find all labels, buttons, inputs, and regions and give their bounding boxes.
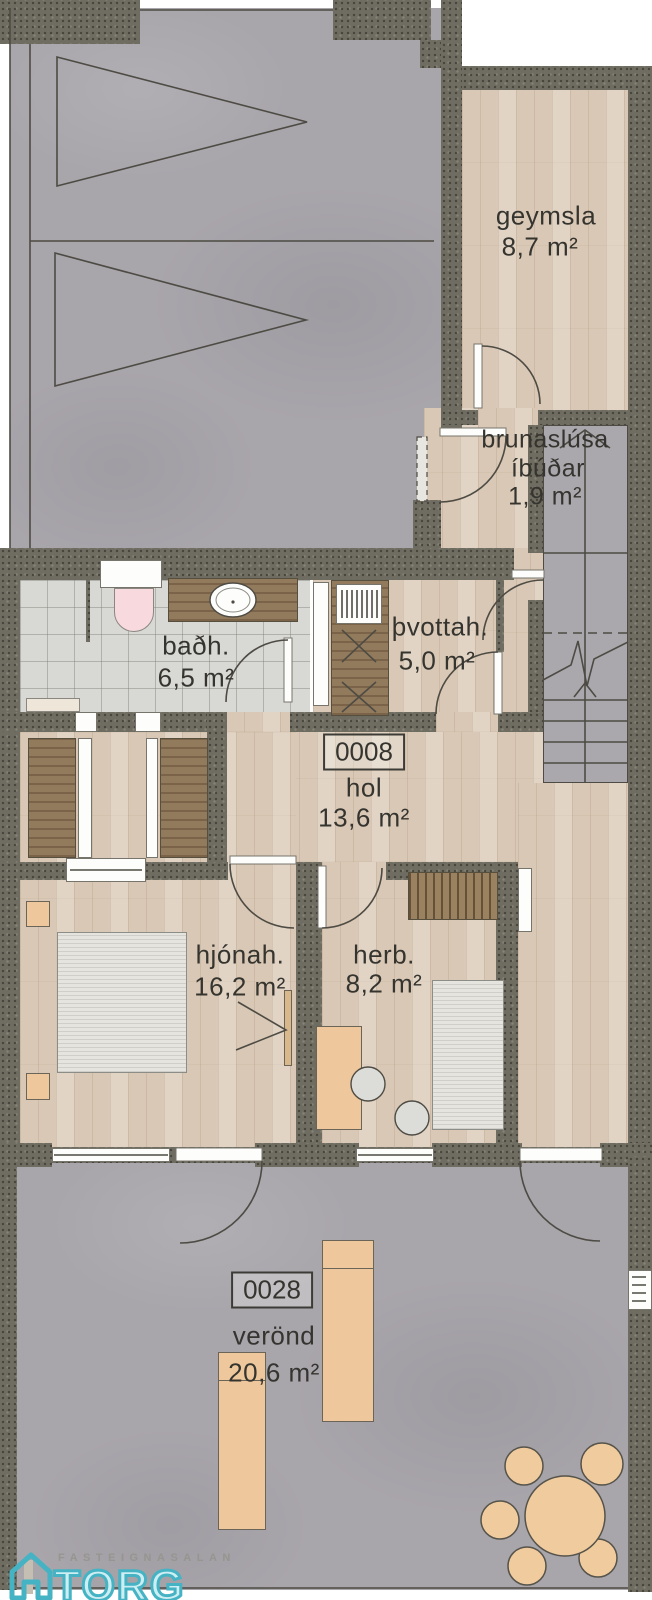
washing-machine-icon	[342, 590, 377, 618]
verond-area: 20,6 m²	[228, 1358, 320, 1389]
door-arc	[520, 1161, 600, 1241]
thvottahus-label: þvottah.	[392, 612, 489, 643]
door-leaf	[318, 866, 326, 928]
sliding-fire-door	[417, 437, 427, 501]
sink-icon	[210, 583, 256, 617]
door-leaf	[520, 1148, 602, 1161]
hjonaherbergi-label: hjónah.	[196, 940, 285, 971]
brunaslusa-label2: íbúðar	[511, 455, 585, 484]
round-table	[525, 1476, 605, 1556]
torg-house-icon	[12, 1555, 50, 1598]
hjonaherbergi-area: 16,2 m²	[194, 972, 286, 1003]
terrace-dining-set	[481, 1443, 623, 1585]
door-arc	[322, 868, 382, 928]
door-leaf	[284, 638, 292, 702]
door-arc	[482, 346, 540, 404]
door-leaf	[512, 570, 544, 578]
herbergi-area: 8,2 m²	[346, 969, 423, 1000]
door-leaf	[494, 652, 502, 714]
door-leaf	[474, 344, 482, 408]
cabinet-x-icon	[342, 630, 376, 712]
mirror-pointer	[236, 1002, 286, 1050]
logo-title: TORG	[54, 1562, 185, 1600]
verond-room-number: 0028	[231, 1272, 313, 1309]
geymsla-label: geymsla	[496, 201, 596, 232]
door-leaf	[230, 856, 296, 864]
door-arc	[226, 640, 288, 702]
hol-room-number: 0008	[323, 734, 405, 771]
thvottahus-area: 5,0 m²	[399, 646, 476, 677]
floor-plan: geymsla 8,7 m² brunaslúsa íbúðar 1,9 m² …	[0, 0, 652, 1600]
brunaslusa-label: brunaslúsa	[481, 426, 608, 455]
door-arc	[230, 864, 294, 928]
door-arc	[483, 580, 543, 640]
window-lines	[54, 870, 646, 1301]
garage-markings	[10, 8, 434, 548]
verond-label: verönd	[233, 1321, 316, 1352]
badherbergi-label: baðh.	[162, 631, 230, 662]
geymsla-area: 8,7 m²	[502, 232, 579, 263]
herbergi-label: herb.	[353, 940, 415, 971]
hol-label: hol	[346, 773, 382, 804]
stools	[351, 1067, 429, 1135]
brunaslusa-area: 1,9 m²	[508, 483, 582, 512]
badherbergi-area: 6,5 m²	[158, 663, 235, 694]
hol-area: 13,6 m²	[318, 803, 410, 834]
door-leaf	[176, 1148, 262, 1161]
door-arc	[180, 1161, 262, 1243]
